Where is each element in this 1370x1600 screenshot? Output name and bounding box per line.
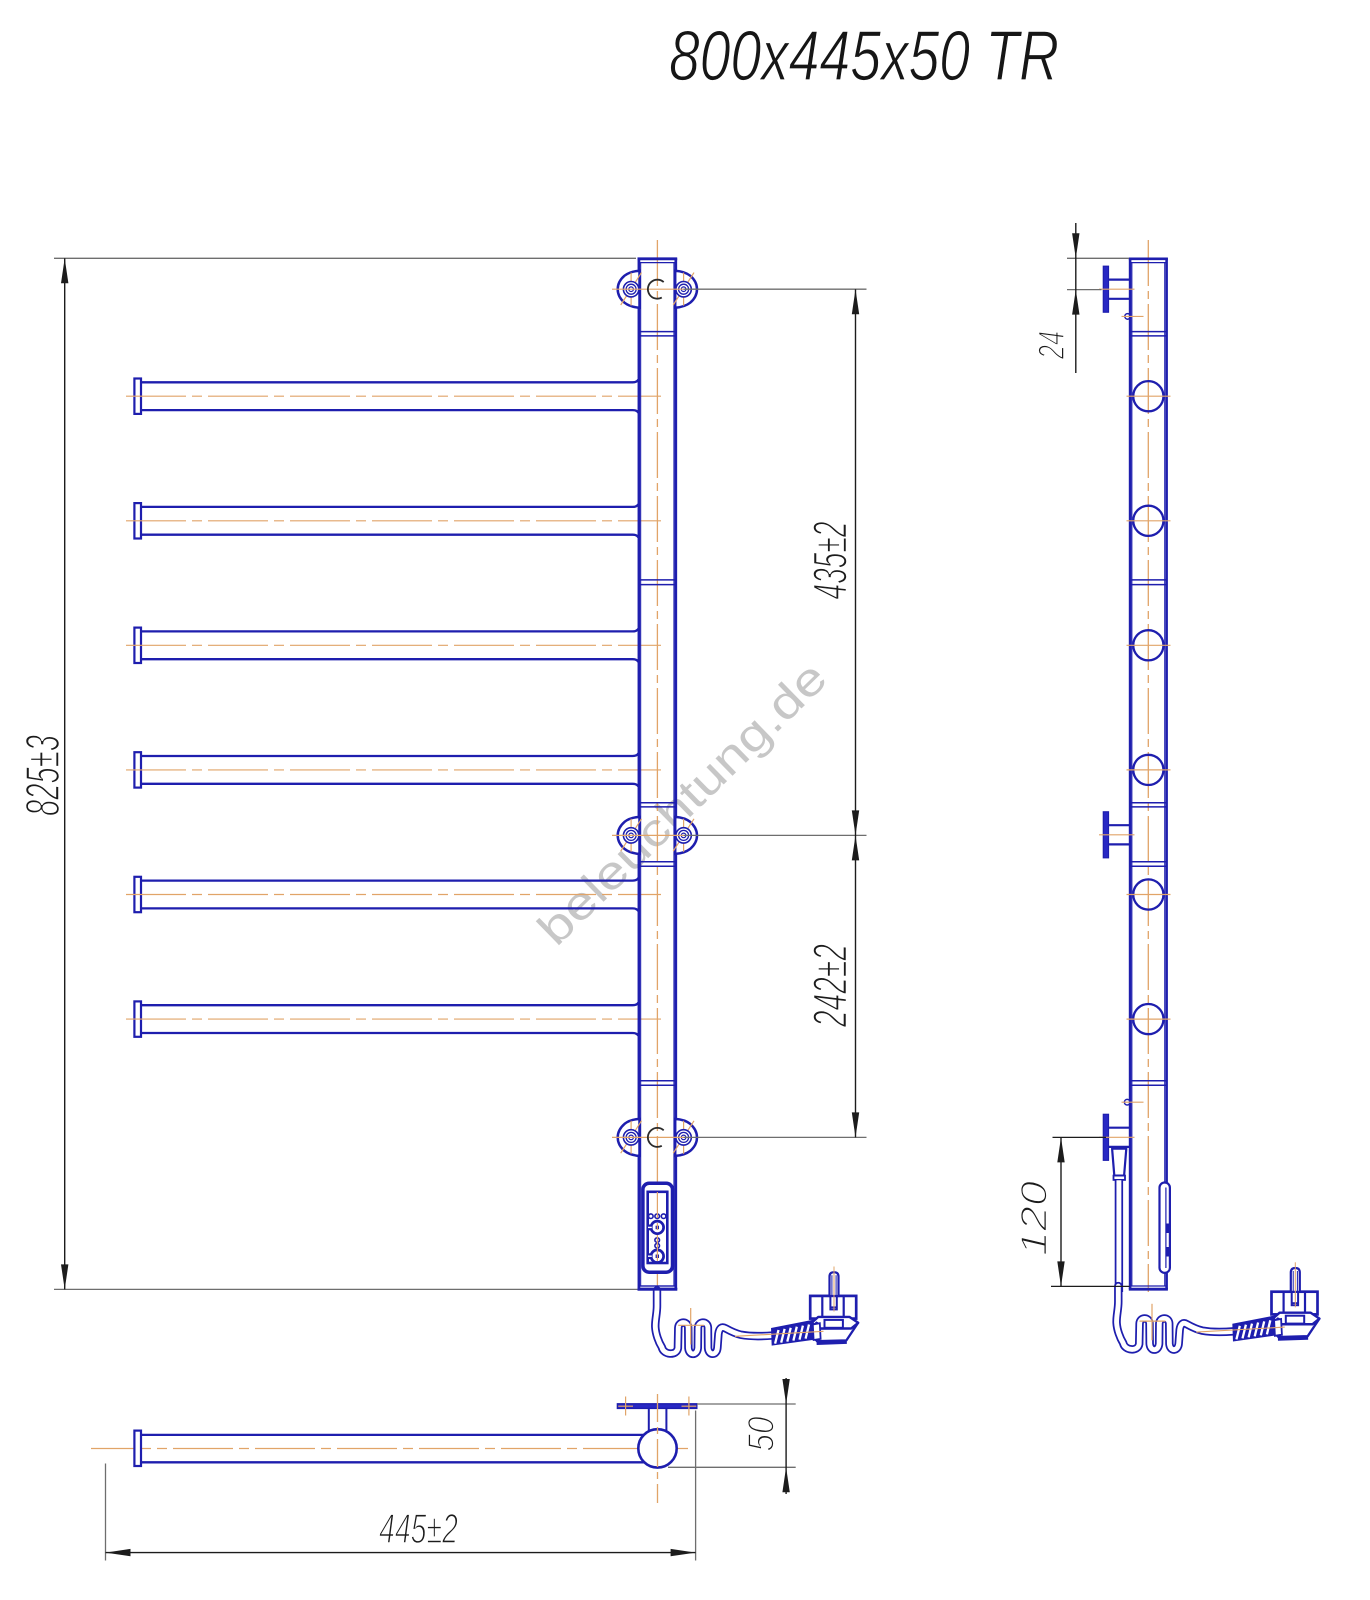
- svg-text:800x445x50 TR: 800x445x50 TR: [669, 17, 1059, 96]
- svg-text:825±3: 825±3: [17, 735, 70, 816]
- svg-text:120: 120: [1014, 1180, 1055, 1256]
- svg-text:24: 24: [1031, 331, 1072, 360]
- svg-text:242±2: 242±2: [804, 944, 857, 1028]
- svg-text:435±2: 435±2: [804, 522, 857, 600]
- svg-text:50: 50: [740, 1416, 781, 1451]
- svg-text:445±2: 445±2: [379, 1505, 458, 1552]
